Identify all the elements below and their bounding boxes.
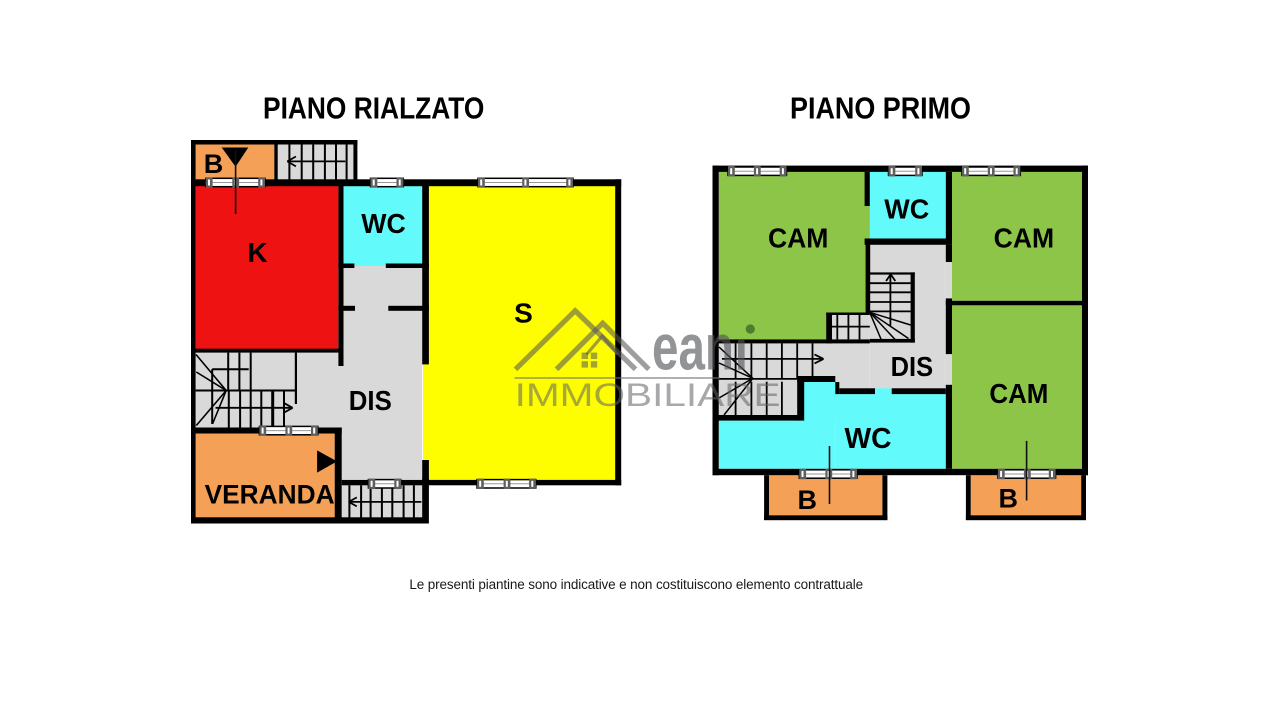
svg-text:ean: ean: [652, 311, 734, 384]
svg-text:DIS: DIS: [891, 351, 934, 382]
svg-text:K: K: [247, 237, 267, 268]
svg-text:CAM: CAM: [768, 222, 829, 253]
svg-text:Le presenti piantine sono indi: Le presenti piantine sono indicative e n…: [409, 577, 863, 592]
svg-text:DIS: DIS: [349, 385, 392, 416]
svg-text:WC: WC: [845, 423, 892, 455]
svg-text:IMMOBILIARE: IMMOBILIARE: [515, 377, 781, 413]
svg-text:CAM: CAM: [994, 222, 1055, 253]
svg-text:WC: WC: [884, 194, 929, 225]
svg-text:PIANO PRIMO: PIANO PRIMO: [790, 90, 971, 125]
svg-text:VERANDA: VERANDA: [205, 479, 335, 509]
svg-text:B: B: [798, 485, 818, 515]
svg-text:WC: WC: [361, 208, 406, 239]
svg-text:CAM: CAM: [989, 378, 1048, 409]
svg-text:B: B: [204, 149, 224, 179]
svg-text:B: B: [999, 483, 1019, 513]
svg-text:S: S: [514, 298, 533, 329]
svg-text:PIANO RIALZATO: PIANO RIALZATO: [263, 90, 484, 125]
